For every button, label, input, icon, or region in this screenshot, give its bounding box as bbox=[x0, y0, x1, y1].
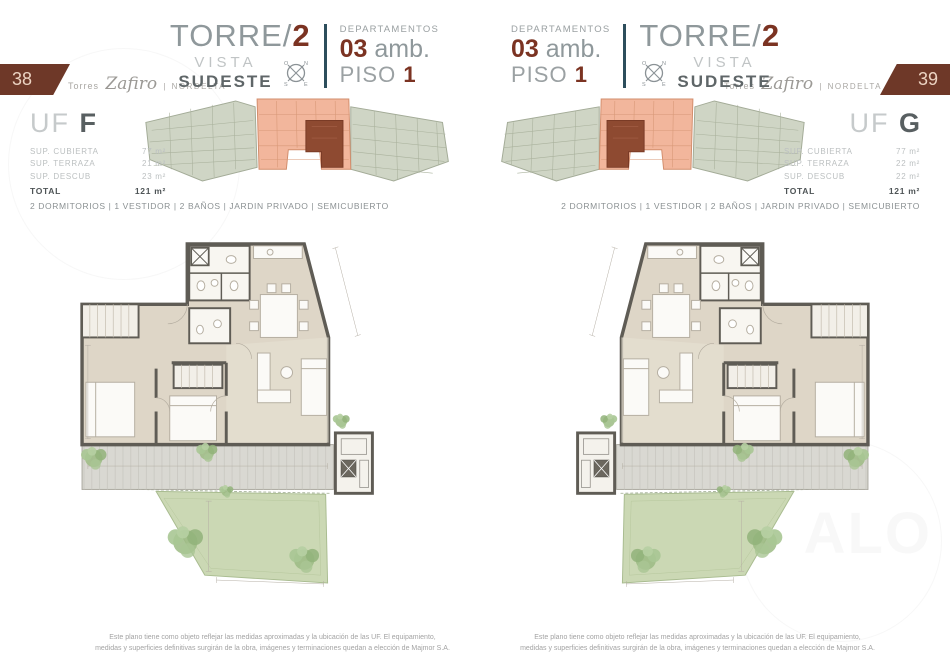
svg-text:O: O bbox=[642, 61, 647, 67]
disclaimer: Este plano tiene como objeto reflejar la… bbox=[0, 632, 475, 654]
svg-text:E: E bbox=[662, 82, 666, 88]
unit-info: UF G SUP. CUBIERTA77 m² SUP. TERRAZA22 m… bbox=[784, 110, 920, 198]
disclaimer-line-2: medidas y superficies definitivas surgir… bbox=[80, 643, 465, 654]
vista-label: VISTA bbox=[194, 54, 256, 72]
torre-number: 2 bbox=[292, 18, 310, 53]
departamentos-label: DEPARTAMENTOS bbox=[511, 25, 610, 36]
unit-features: 2 DORMITORIOS | 1 VESTIDOR | 2 BAÑOS | J… bbox=[30, 201, 389, 211]
disclaimer: Este plano tiene como objeto reflejar la… bbox=[475, 632, 950, 654]
torre-title: TORRE/2 bbox=[170, 20, 311, 51]
ambientes-line: 03 amb. bbox=[511, 35, 610, 63]
page-39: ALO 39 Torres Zafiro | NORDELTA TORRE/2 … bbox=[475, 0, 950, 670]
torre-block: TORRE/2 VISTA SUDESTE O N S E bbox=[639, 20, 780, 92]
torre-number: 2 bbox=[762, 18, 780, 53]
area-row: SUP. DESCUB23 m² bbox=[30, 171, 166, 183]
svg-text:E: E bbox=[304, 82, 308, 88]
unit-info: UF F SUP. CUBIERTA77 m² SUP. TERRAZA21 m… bbox=[30, 110, 166, 198]
area-total-row: TOTAL121 m² bbox=[784, 185, 920, 198]
svg-text:O: O bbox=[284, 61, 289, 67]
site-plan bbox=[488, 90, 810, 190]
vista-label: VISTA bbox=[693, 54, 755, 72]
page-38: 38 Torres Zafiro | NORDELTA TORRE/2 VIST… bbox=[0, 0, 475, 670]
disclaimer-line-2: medidas y superficies definitivas surgir… bbox=[505, 643, 890, 654]
floor-plan bbox=[558, 240, 870, 620]
unit-features: 2 DORMITORIOS | 1 VESTIDOR | 2 BAÑOS | J… bbox=[561, 201, 920, 211]
area-row: SUP. TERRAZA21 m² bbox=[30, 158, 166, 170]
page-header: TORRE/2 VISTA SUDESTE O N S E DEPARTAMEN bbox=[475, 20, 950, 92]
site-plan bbox=[140, 90, 462, 190]
torre-prefix: TORRE/ bbox=[639, 18, 762, 53]
disclaimer-line-1: Este plano tiene como objeto reflejar la… bbox=[505, 632, 890, 643]
torre-block: TORRE/2 VISTA SUDESTE O N S E bbox=[170, 20, 311, 92]
header-divider bbox=[623, 24, 626, 88]
compass-icon: O N S E bbox=[281, 58, 311, 88]
svg-text:N: N bbox=[304, 61, 308, 67]
area-row: SUP. CUBIERTA77 m² bbox=[784, 146, 920, 158]
unit-title: UF F bbox=[30, 110, 166, 137]
piso-line: PISO 1 bbox=[340, 63, 439, 88]
departamentos-block: DEPARTAMENTOS 03 amb. PISO 1 bbox=[511, 25, 610, 88]
svg-text:S: S bbox=[284, 82, 288, 88]
page-header: TORRE/2 VISTA SUDESTE O N S E DEPARTAMEN bbox=[0, 20, 475, 92]
area-row: SUP. CUBIERTA77 m² bbox=[30, 146, 166, 158]
piso-line: PISO 1 bbox=[511, 63, 610, 88]
area-row: SUP. TERRAZA22 m² bbox=[784, 158, 920, 170]
floor-plan bbox=[80, 240, 392, 620]
area-total-row: TOTAL121 m² bbox=[30, 185, 166, 198]
area-row: SUP. DESCUB22 m² bbox=[784, 171, 920, 183]
departamentos-label: DEPARTAMENTOS bbox=[340, 25, 439, 36]
compass-icon: O N S E bbox=[639, 58, 669, 88]
svg-text:S: S bbox=[642, 82, 646, 88]
departamentos-block: DEPARTAMENTOS 03 amb. PISO 1 bbox=[340, 25, 439, 88]
disclaimer-line-1: Este plano tiene como objeto reflejar la… bbox=[80, 632, 465, 643]
svg-text:N: N bbox=[662, 61, 666, 67]
header-divider bbox=[324, 24, 327, 88]
torre-title: TORRE/2 bbox=[639, 20, 780, 51]
ambientes-line: 03 amb. bbox=[340, 35, 439, 63]
torre-prefix: TORRE/ bbox=[170, 18, 293, 53]
unit-title: UF G bbox=[784, 110, 920, 137]
